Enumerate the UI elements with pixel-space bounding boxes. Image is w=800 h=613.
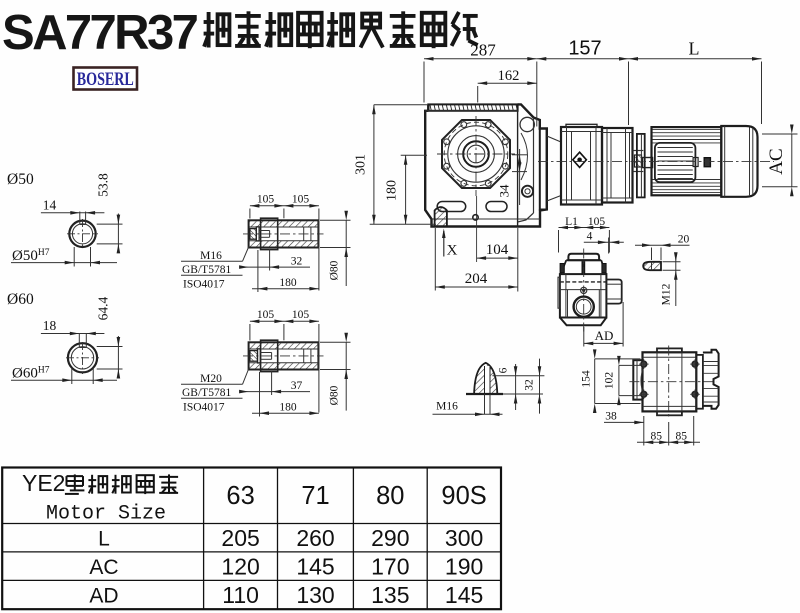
svg-text:37: 37: [291, 380, 303, 392]
svg-text:GB/T5781: GB/T5781: [182, 264, 231, 276]
svg-text:53.8: 53.8: [96, 173, 111, 197]
svg-text:L1: L1: [565, 216, 578, 228]
svg-text:Ø80: Ø80: [329, 260, 341, 280]
svg-text:102: 102: [604, 372, 616, 390]
svg-text:Ø80: Ø80: [329, 385, 341, 405]
svg-text:4: 4: [587, 230, 593, 242]
svg-text:L: L: [689, 39, 700, 59]
svg-text:AC: AC: [766, 148, 787, 174]
svg-text:145: 145: [445, 582, 483, 608]
svg-text:260: 260: [296, 525, 334, 551]
svg-text:287: 287: [470, 41, 496, 60]
svg-text:71: 71: [301, 482, 329, 510]
svg-text:Ø50: Ø50: [7, 171, 34, 188]
svg-text:L: L: [98, 528, 110, 551]
svg-text:180: 180: [385, 180, 400, 201]
svg-text:170: 170: [371, 554, 409, 580]
svg-text:SA77R37: SA77R37: [2, 6, 198, 60]
svg-text:90S: 90S: [441, 482, 486, 510]
svg-text:63: 63: [226, 482, 254, 510]
svg-text:135: 135: [371, 582, 409, 608]
svg-text:301: 301: [354, 154, 369, 175]
svg-text:32: 32: [291, 255, 303, 267]
svg-text:ISO4017: ISO4017: [183, 279, 225, 291]
svg-text:32: 32: [524, 379, 536, 391]
svg-text:M16: M16: [200, 250, 222, 262]
svg-text:204: 204: [465, 271, 488, 287]
svg-text:M20: M20: [200, 373, 222, 385]
svg-text:190: 190: [445, 554, 483, 580]
svg-text:290: 290: [371, 525, 409, 551]
svg-text:180: 180: [279, 401, 297, 413]
svg-text:34: 34: [497, 184, 512, 198]
svg-text:154: 154: [581, 370, 593, 388]
svg-text:AD: AD: [595, 328, 614, 343]
svg-text:20: 20: [678, 234, 690, 246]
svg-text:162: 162: [498, 68, 520, 84]
svg-text:80: 80: [376, 482, 404, 510]
svg-text:105: 105: [292, 309, 310, 321]
svg-text:6: 6: [498, 367, 510, 373]
svg-text:YE2: YE2: [22, 470, 65, 496]
svg-text:105: 105: [588, 216, 606, 228]
svg-text:Ø60: Ø60: [7, 291, 34, 308]
svg-text:X: X: [447, 243, 458, 259]
svg-text:104: 104: [486, 242, 509, 258]
svg-text:18: 18: [43, 318, 57, 333]
svg-text:157: 157: [568, 38, 601, 60]
svg-text:300: 300: [445, 525, 483, 551]
svg-text:ISO4017: ISO4017: [183, 402, 225, 414]
svg-text:85: 85: [675, 431, 687, 443]
svg-text:GB/T5781: GB/T5781: [182, 387, 231, 399]
svg-text:AD: AD: [89, 585, 118, 608]
svg-text:105: 105: [257, 194, 275, 206]
svg-text:M16: M16: [436, 401, 458, 413]
svg-text:M12: M12: [661, 283, 673, 305]
svg-text:205: 205: [221, 525, 259, 551]
svg-text:180: 180: [279, 277, 297, 289]
svg-text:130: 130: [296, 582, 334, 608]
svg-text:AC: AC: [89, 556, 118, 579]
svg-text:110: 110: [222, 582, 259, 608]
svg-text:105: 105: [257, 309, 275, 321]
svg-text:64.4: 64.4: [96, 296, 111, 320]
svg-text:120: 120: [221, 554, 259, 580]
svg-text:14: 14: [43, 198, 57, 213]
svg-text:38: 38: [605, 411, 617, 423]
svg-text:105: 105: [292, 194, 310, 206]
svg-text:145: 145: [296, 554, 334, 580]
svg-text:BOSERL: BOSERL: [77, 70, 134, 90]
svg-text:85: 85: [650, 431, 662, 443]
svg-text:Motor Size: Motor Size: [46, 502, 166, 525]
